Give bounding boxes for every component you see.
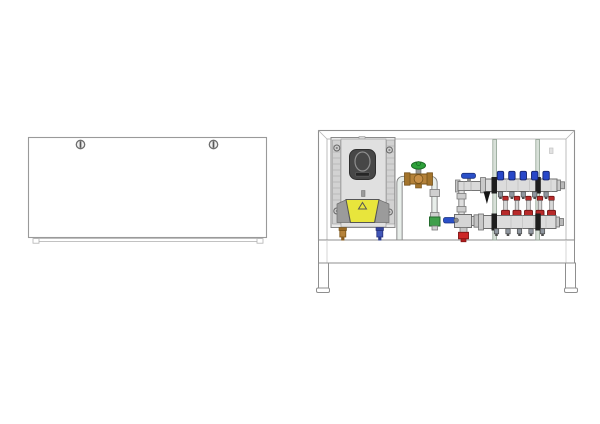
top-bar-right-end: [557, 180, 561, 191]
bottom-bar-left-cap: [479, 214, 484, 230]
bar-clamp-3: [492, 214, 498, 231]
top-port-tip-2: [511, 197, 514, 199]
flow-cap-1: [497, 171, 503, 180]
bottom-rail: [319, 240, 575, 263]
cabinet-door: [29, 138, 267, 238]
meter-sight-glass-5: [550, 201, 554, 211]
meter-sight-glass-3: [527, 201, 531, 211]
unit-center-fitting: [362, 191, 366, 197]
cabinet-base-strip: [34, 239, 262, 242]
meter-cap-3: [526, 196, 531, 200]
wall-detail-mark: [550, 148, 554, 154]
top-port-tip-5: [545, 197, 548, 199]
blue-handle-top: [462, 173, 476, 178]
isolation-valve-top: [458, 182, 481, 191]
coupling-2: [457, 207, 466, 213]
pipe-union-nut: [430, 190, 440, 197]
closed-cabinet-view: [29, 138, 267, 244]
bottom-port-tip-5: [541, 234, 544, 236]
top-port-tip-3: [522, 197, 525, 199]
meter-sight-glass-1: [504, 201, 508, 211]
meter-cap-2: [514, 196, 519, 200]
bottom-port-tip-3: [518, 234, 521, 236]
top-port-2: [510, 192, 514, 197]
door-screw-left: [76, 140, 84, 148]
blue-lever-left: [444, 218, 456, 224]
valve-stem-top: [467, 178, 471, 181]
bottom-port-1: [494, 229, 498, 234]
bottom-port-2: [506, 229, 510, 234]
bottom-bar-right-end: [556, 217, 560, 227]
top-port-5: [544, 192, 548, 197]
valve-nut-left: [405, 173, 411, 185]
bottom-port-tip-2: [507, 234, 510, 236]
leg-right: [566, 263, 576, 289]
meter-sight-glass-4: [538, 201, 542, 211]
coupling-1: [457, 194, 466, 200]
display-label-bar: [356, 173, 370, 177]
technical-drawing-heating-cabinet: [0, 0, 600, 424]
valve-nut-right: [427, 173, 433, 185]
lever-pivot: [454, 218, 458, 222]
bar-clamp-4: [535, 214, 541, 231]
bottom-port-4: [529, 229, 533, 234]
top-port-3: [521, 192, 525, 197]
foot-right: [565, 288, 578, 293]
bottom-bar-end-plug: [560, 219, 564, 226]
meter-cap-4: [537, 196, 542, 200]
door-screw-right: [209, 140, 217, 148]
meter-cap-1: [503, 196, 508, 200]
flow-cap-4: [532, 171, 538, 180]
handwheel-cap: [417, 162, 421, 166]
drawing-canvas: [0, 0, 600, 424]
top-port-4: [533, 192, 537, 197]
top-bar-end-plug: [561, 182, 565, 189]
base-foot-right: [257, 239, 263, 244]
top-port-tip-1: [499, 197, 502, 199]
meter-cap-5: [549, 196, 554, 200]
meter-display: [350, 150, 376, 180]
flow-cap-2: [509, 171, 515, 180]
bar-clamp-1: [492, 177, 498, 194]
foot-left: [317, 288, 330, 293]
bottom-port-5: [540, 229, 544, 234]
top-port-tip-4: [533, 197, 536, 199]
bottom-port-tip-1: [495, 234, 498, 236]
valve-bottom-port: [416, 184, 422, 188]
valve-dial: [414, 175, 423, 184]
base-foot-left: [33, 239, 39, 244]
top-bar-left-cap: [481, 178, 486, 193]
flow-cap-5: [543, 171, 549, 180]
bottom-port-3: [517, 229, 521, 234]
meter-sight-glass-2: [515, 201, 519, 211]
leg-left: [319, 263, 329, 289]
heat-interface-unit: [331, 137, 395, 228]
bottom-port-tip-4: [530, 234, 533, 236]
flow-cap-3: [520, 171, 526, 180]
top-port-1: [498, 192, 502, 197]
open-cabinet-view: [317, 131, 578, 293]
